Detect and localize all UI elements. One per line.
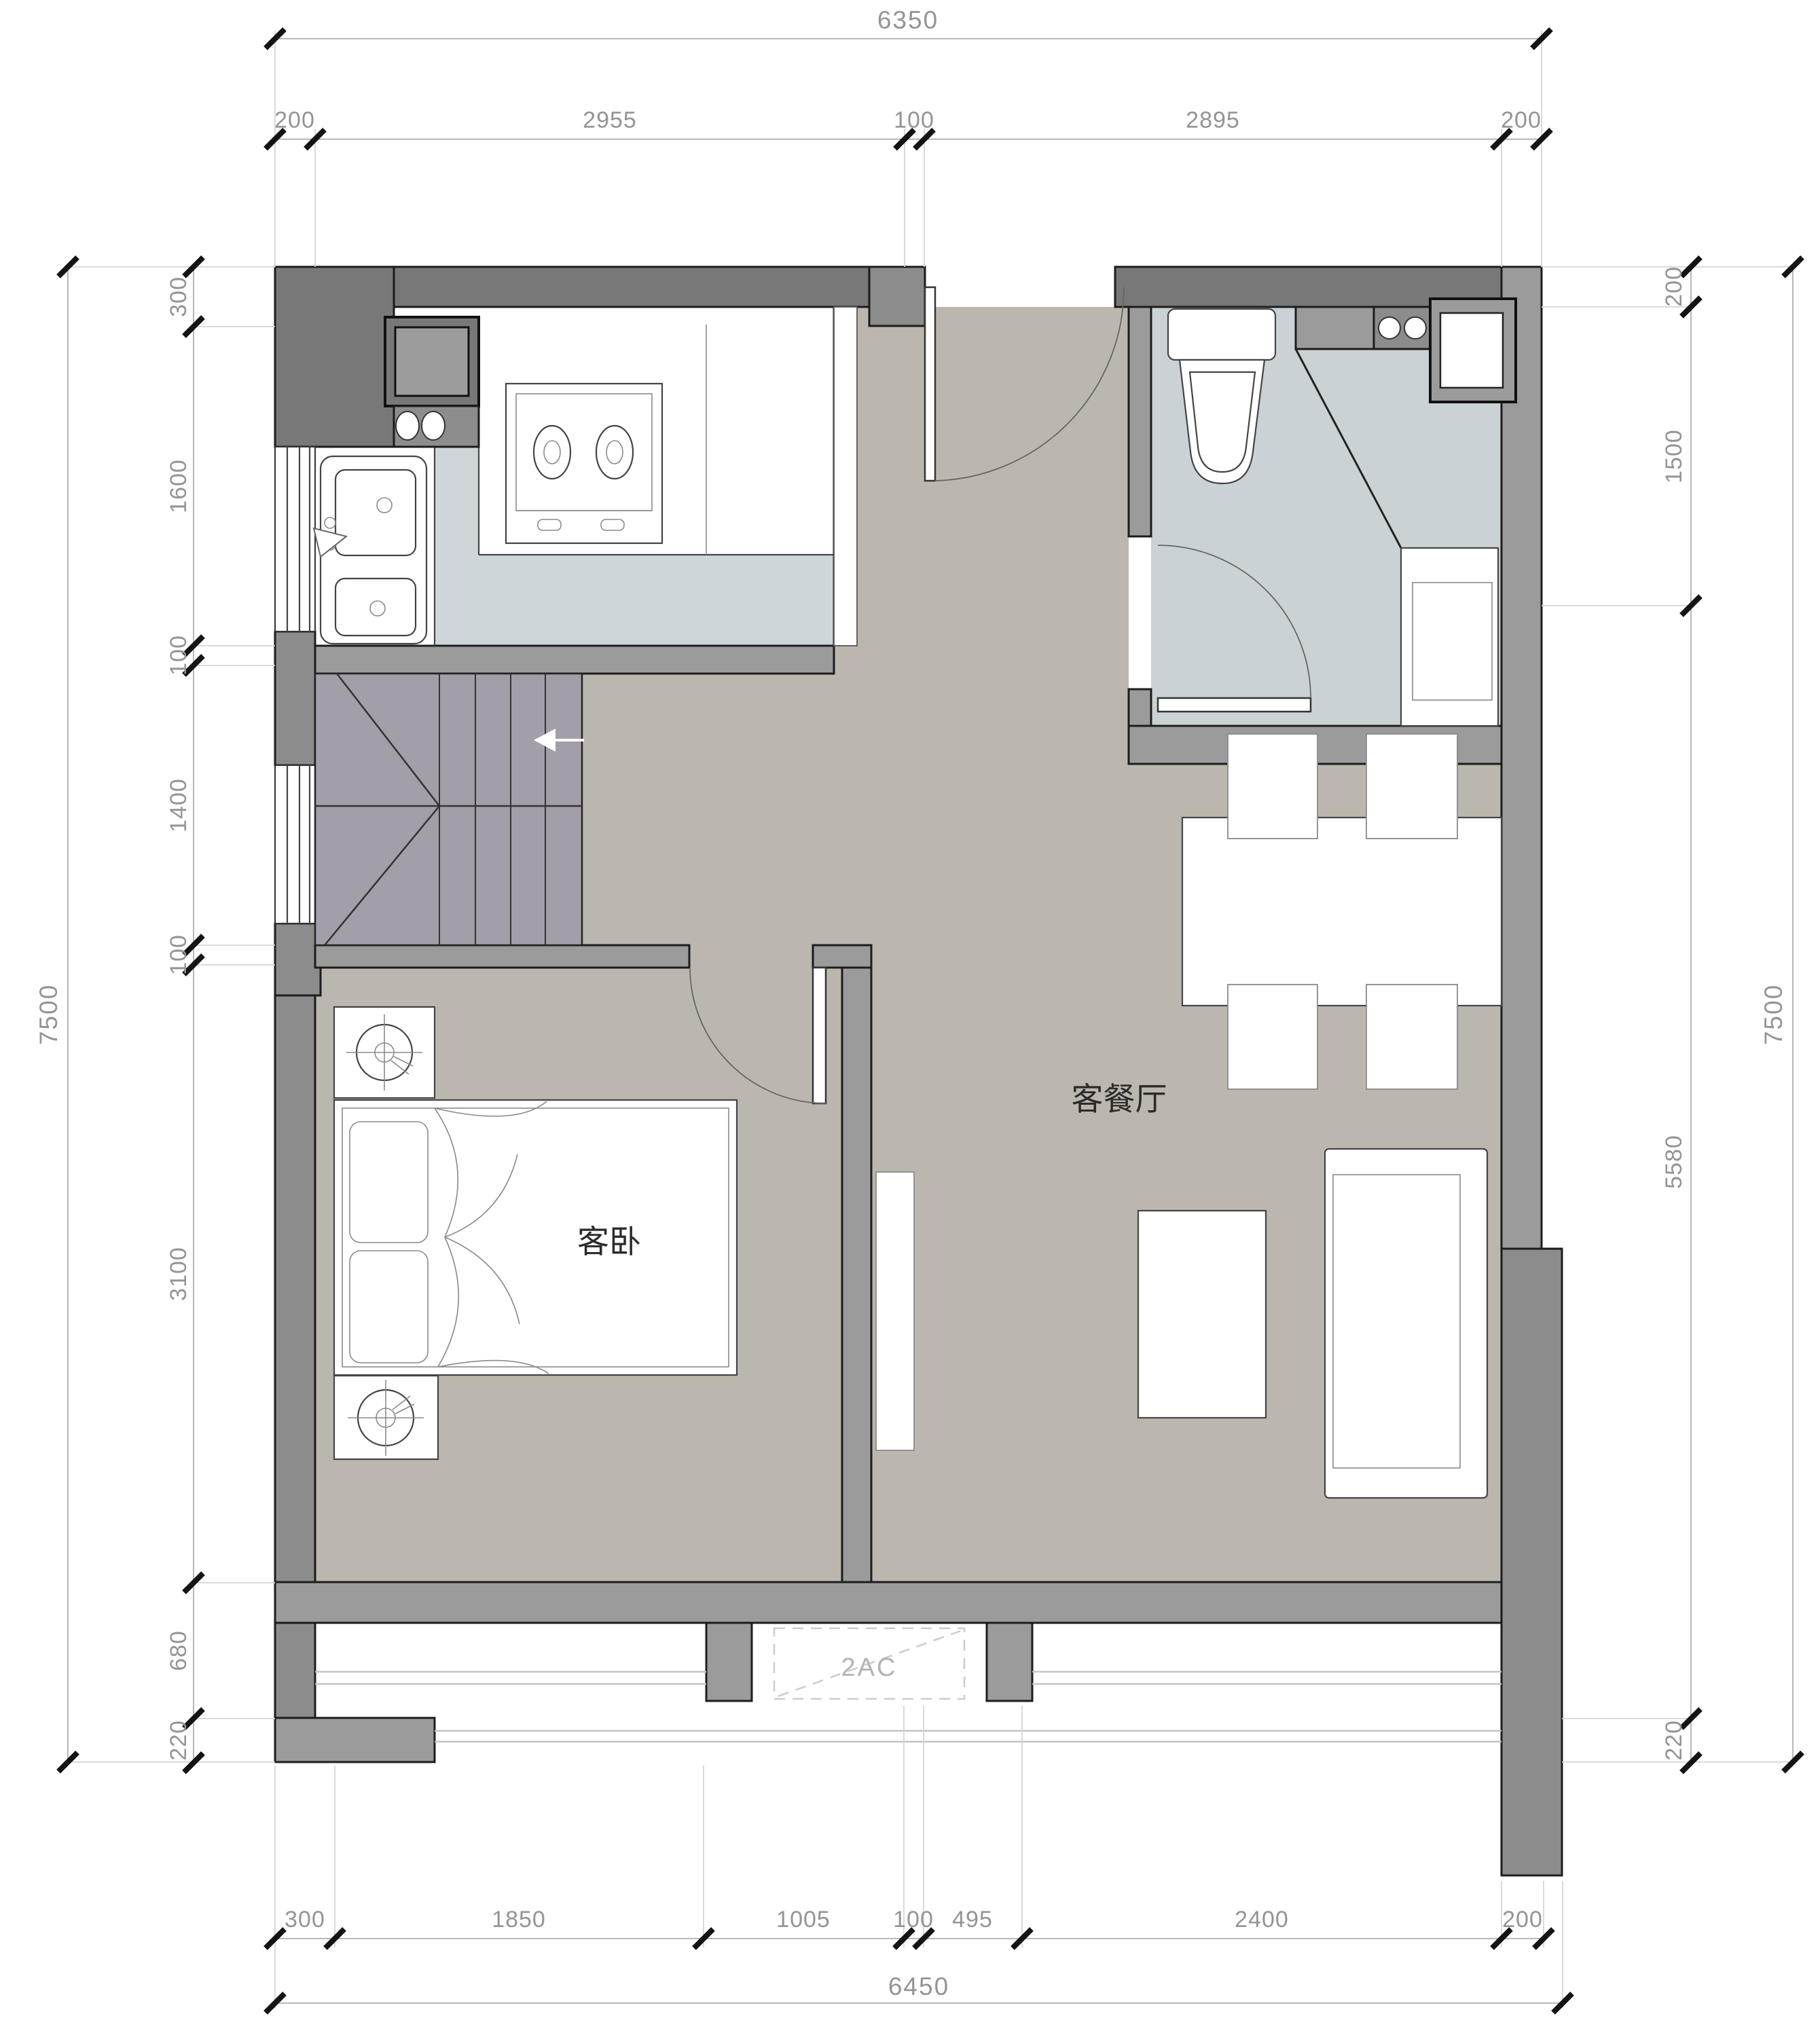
- dim-top-seg: 100: [894, 107, 934, 133]
- living-dining-label: 客餐厅: [1072, 1081, 1167, 1117]
- wall-bathroom-left-stub: [1129, 689, 1151, 726]
- dim-right-total: 7500: [1760, 984, 1787, 1045]
- wall-entry-stub: [869, 267, 925, 326]
- dim-top-seg: 200: [1501, 107, 1542, 133]
- wall-bedroom-topleft-block: [275, 923, 321, 995]
- wall-bottom-band: [275, 1582, 1501, 1623]
- kitchen-sink-icon: [314, 456, 426, 644]
- dining-table: [1182, 818, 1501, 1006]
- dim-top-seg: 2955: [583, 107, 637, 133]
- window-stair-icon: [275, 765, 315, 923]
- wall-ac-column-left: [706, 1623, 752, 1701]
- dimensions-left: 7500 300 1600 100 1400 100 3100 680 220: [35, 257, 275, 1772]
- window-kitchen-icon: [275, 447, 315, 631]
- wall-ac-column-right: [987, 1623, 1032, 1701]
- coffee-table: [1138, 1211, 1266, 1418]
- kitchen-door-strip: [834, 307, 857, 646]
- dim-left-seg: 1600: [166, 459, 192, 513]
- dining-chair: [1228, 734, 1317, 839]
- sofa-icon: [1325, 1149, 1487, 1498]
- dim-left-seg: 3100: [166, 1247, 192, 1301]
- dim-left-seg: 300: [166, 276, 192, 317]
- wall-bottomleft-block: [275, 1718, 435, 1762]
- ac-unit-label: 2AC: [841, 1653, 898, 1682]
- wall-kitchen-bottom: [315, 646, 834, 674]
- fridge-icon: [385, 317, 479, 406]
- dim-bottom-seg: 100: [893, 1907, 934, 1932]
- dimensions-right: 7500 200 1500 5580 220: [1542, 257, 1802, 1772]
- tv-console: [876, 1172, 914, 1450]
- wall-bedroom-living-divider: [842, 968, 871, 1582]
- dim-left-seg: 1400: [166, 778, 192, 832]
- nightstand-top-icon: [334, 1007, 435, 1098]
- dimensions-top: 6350 200 2955 100 2895 200: [266, 6, 1551, 267]
- stove-icon: [506, 384, 662, 543]
- dim-bottom-seg: 200: [1502, 1907, 1543, 1932]
- dim-left-seg: 100: [166, 934, 192, 975]
- hob-knob-block-icon: [394, 406, 479, 447]
- dim-left-seg: 100: [166, 635, 192, 676]
- dim-bottom-seg: 2400: [1235, 1907, 1289, 1932]
- wall-right-lower-block: [1501, 1249, 1562, 1875]
- dim-right-seg: 220: [1661, 1720, 1687, 1761]
- wall-left-pier-stair: [275, 631, 315, 765]
- dim-left-seg: 220: [166, 1720, 192, 1761]
- nightstand-bottom-icon: [334, 1376, 438, 1459]
- balcony: 2AC: [315, 1628, 1501, 1742]
- ac-unit-box: 2AC: [774, 1628, 964, 1699]
- wall-right-upper: [1501, 267, 1542, 1249]
- dining-chair: [1366, 734, 1457, 839]
- dim-top-seg: 200: [274, 107, 315, 133]
- dining-chair: [1366, 985, 1457, 1089]
- wall-bathroom-left: [1129, 307, 1151, 536]
- bed-icon: [334, 1100, 737, 1375]
- wall-stair-bottom: [315, 945, 689, 968]
- dim-bottom-total: 6450: [888, 1973, 949, 2000]
- washing-machine-icon: [1430, 299, 1516, 402]
- wall-bedroom-door-stub: [813, 945, 871, 968]
- dim-top-seg: 2895: [1186, 107, 1240, 133]
- dim-bottom-seg: 1005: [776, 1907, 831, 1932]
- dim-right-seg: 200: [1661, 266, 1687, 307]
- bedroom-door-leaf: [813, 968, 826, 1103]
- dim-left-total: 7500: [35, 984, 62, 1045]
- shower-tray-icon: [1401, 548, 1498, 726]
- staircase: [315, 674, 584, 945]
- dim-bottom-seg: 300: [285, 1907, 325, 1932]
- dimensions-bottom: 300 1850 1005 100 495 2400 200 6450: [266, 1706, 1572, 2013]
- dim-top-total: 6350: [877, 6, 939, 34]
- wall-topleft-block: [275, 267, 394, 447]
- floor-plan-page: 客卧 客餐厅 2AC: [0, 0, 1820, 2035]
- dining-chair: [1228, 985, 1317, 1089]
- wall-left-bedroom: [275, 995, 315, 1762]
- bathroom-door-leaf: [1158, 698, 1311, 712]
- bedroom-label: 客卧: [577, 1224, 641, 1260]
- entry-door-leaf: [925, 287, 935, 481]
- vanity-counter-icon: [1296, 307, 1432, 349]
- dim-right-seg: 1500: [1661, 429, 1687, 483]
- dim-bottom-seg: 495: [952, 1907, 993, 1932]
- dim-bottom-seg: 1850: [492, 1907, 546, 1932]
- dim-left-seg: 680: [166, 1630, 192, 1671]
- floor-plan-canvas: 客卧 客餐厅 2AC: [0, 0, 1820, 2035]
- dim-right-seg: 5580: [1661, 1135, 1687, 1189]
